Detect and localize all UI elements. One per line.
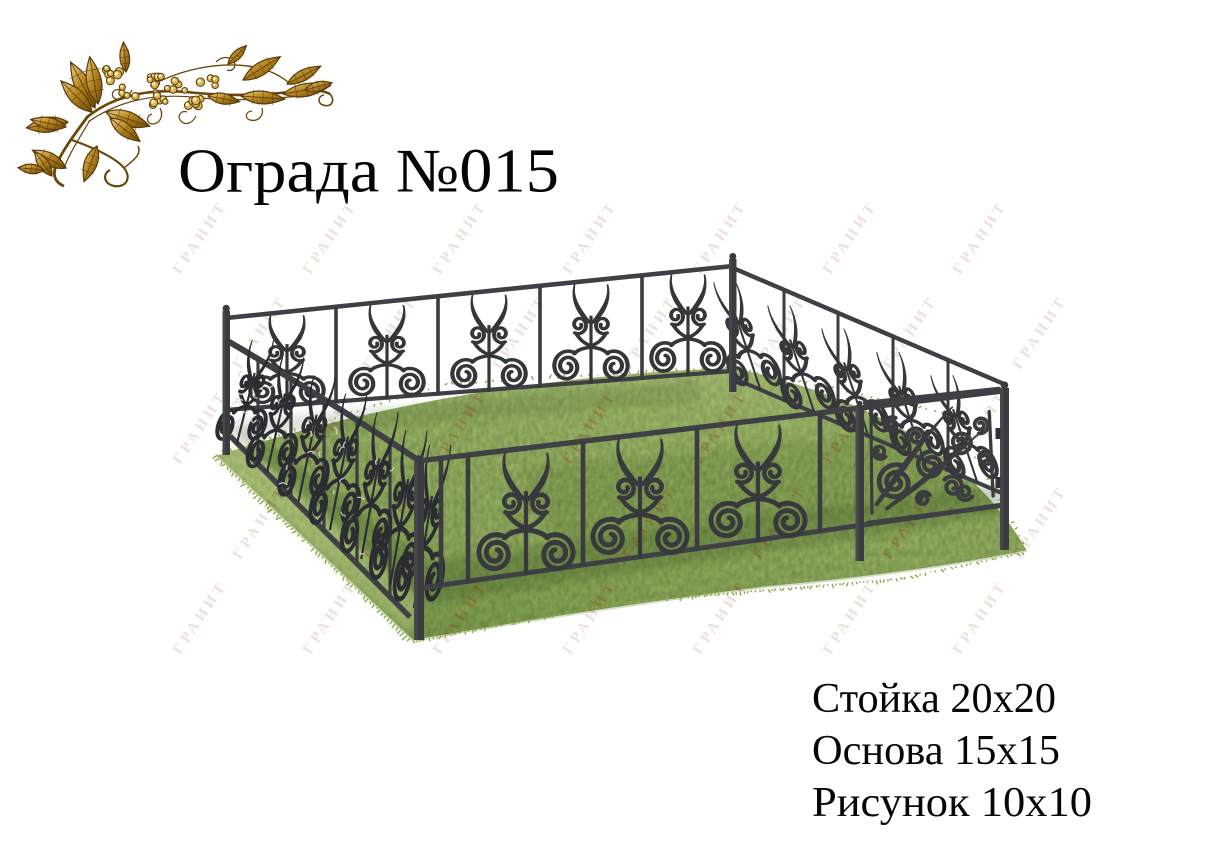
svg-text:Стойка 20х20: Стойка 20х20	[812, 676, 1056, 722]
svg-text:Основа 15х15: Основа 15х15	[812, 728, 1060, 774]
svg-text:Ограда №015: Ограда №015	[178, 138, 559, 206]
svg-text:Рисунок 10х10: Рисунок 10х10	[812, 780, 1092, 826]
